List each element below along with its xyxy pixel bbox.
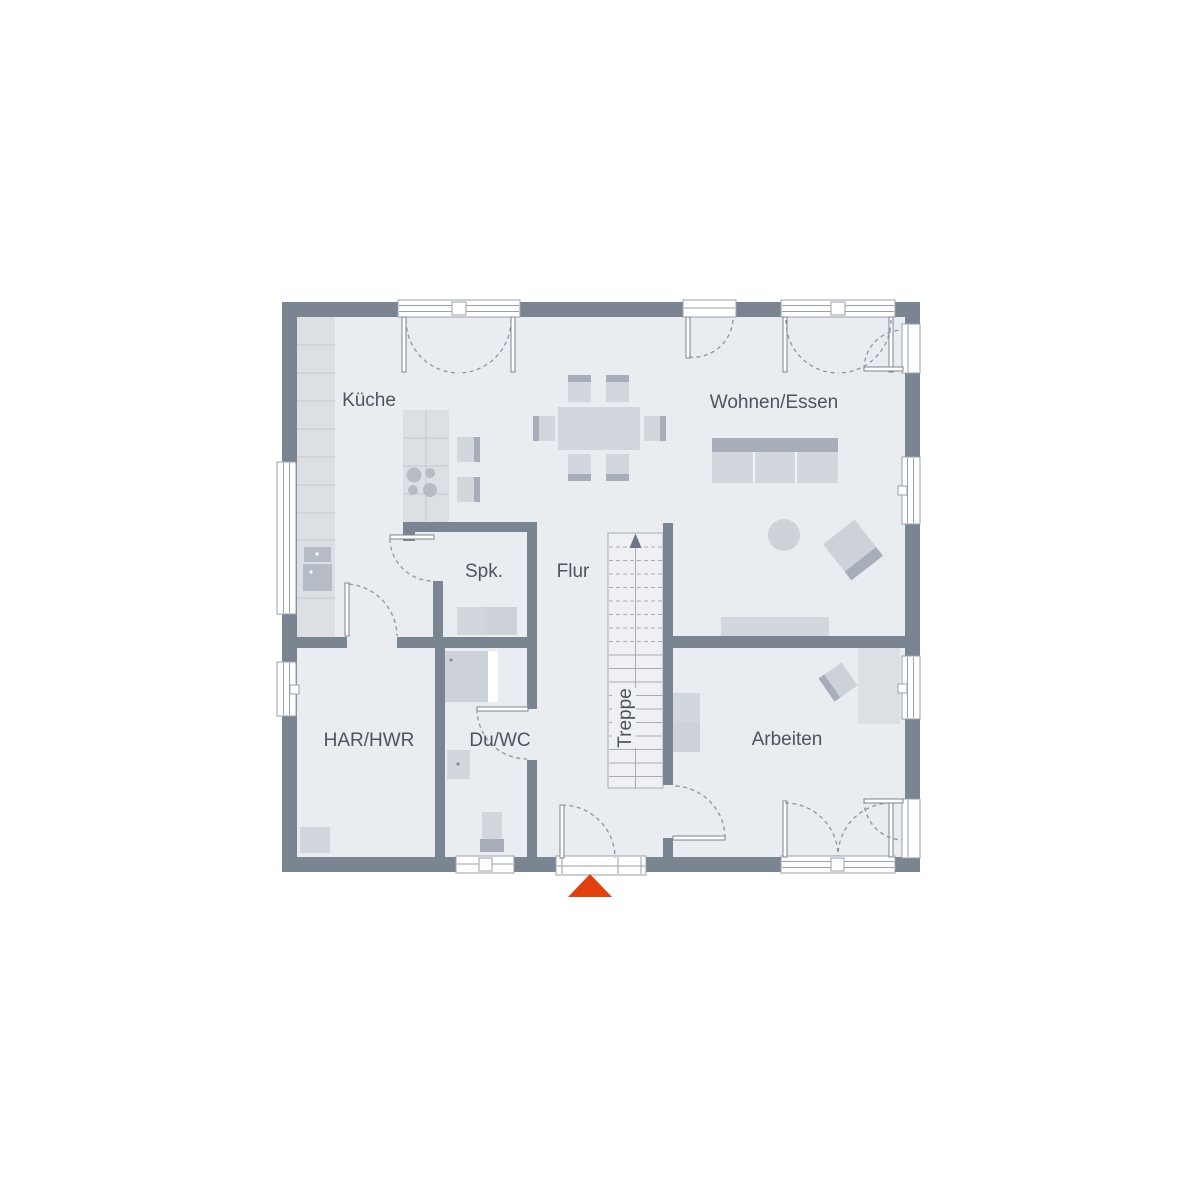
door-right-top [902, 324, 920, 373]
stair-wall-stub [663, 838, 673, 857]
utility-top-wall-left [297, 637, 347, 648]
kitchen-oven [303, 564, 332, 591]
bath-left-wall [435, 648, 445, 857]
pantry-furniture [457, 607, 517, 635]
french-door-living-top [781, 300, 895, 317]
bath-top-wall [397, 637, 537, 648]
office-shelf-top [673, 693, 700, 723]
page-canvas: Küche Wohnen/Essen Spk. Flur Treppe HAR/… [0, 0, 1200, 1200]
pantry-top-wall [403, 522, 537, 532]
label-du-wc: Du/WC [469, 730, 530, 751]
toilet-tank [480, 839, 504, 852]
sink-drain [456, 762, 459, 765]
label-kueche: Küche [342, 390, 396, 411]
label-wohnen-essen: Wohnen/Essen [710, 392, 839, 413]
french-door-office-bottom [781, 856, 895, 873]
shower-head [449, 658, 452, 661]
label-har-hwr: HAR/HWR [324, 730, 415, 751]
label-arbeiten: Arbeiten [752, 729, 823, 750]
shower-door [488, 651, 498, 702]
sofa-back [712, 438, 838, 452]
desk [858, 646, 900, 724]
utility-furniture [300, 827, 330, 853]
stair-wall [663, 523, 673, 785]
door-top-living [683, 300, 736, 317]
window-kitchen-left [277, 462, 296, 614]
wall-right [905, 302, 920, 872]
oven-dot [309, 570, 312, 573]
window-utility-left [277, 662, 299, 716]
floor-area [282, 302, 920, 872]
office-shelf-bottom [673, 723, 700, 752]
label-treppe: Treppe [615, 688, 636, 748]
pantry-shelf-right [487, 607, 517, 635]
entrance-door-frame [556, 856, 646, 875]
washing-machine [300, 827, 330, 853]
sideboard [721, 617, 829, 636]
living-office-divider-wall [663, 636, 905, 648]
coffee-table [768, 519, 800, 551]
sink-dot [315, 552, 318, 555]
stairs [608, 533, 663, 788]
door-right-bottom [902, 799, 920, 858]
entrance-marker [568, 874, 612, 897]
toilet-bowl [482, 812, 502, 839]
window-handle [898, 684, 907, 693]
window-handle [290, 685, 299, 694]
sofa-seat [712, 452, 838, 483]
floor-plan: Küche Wohnen/Essen Spk. Flur Treppe HAR/… [0, 0, 1200, 1200]
pantry-shelf-left [457, 607, 487, 635]
label-spk: Spk. [465, 561, 503, 582]
window-handle [898, 486, 907, 495]
window-bath-bottom [456, 856, 514, 873]
bath-right-wall-upper [527, 522, 537, 709]
bath-right-wall-lower [527, 760, 537, 857]
label-flur: Flur [557, 561, 590, 582]
dining-table [558, 407, 640, 450]
french-door-kitchen [398, 300, 520, 317]
